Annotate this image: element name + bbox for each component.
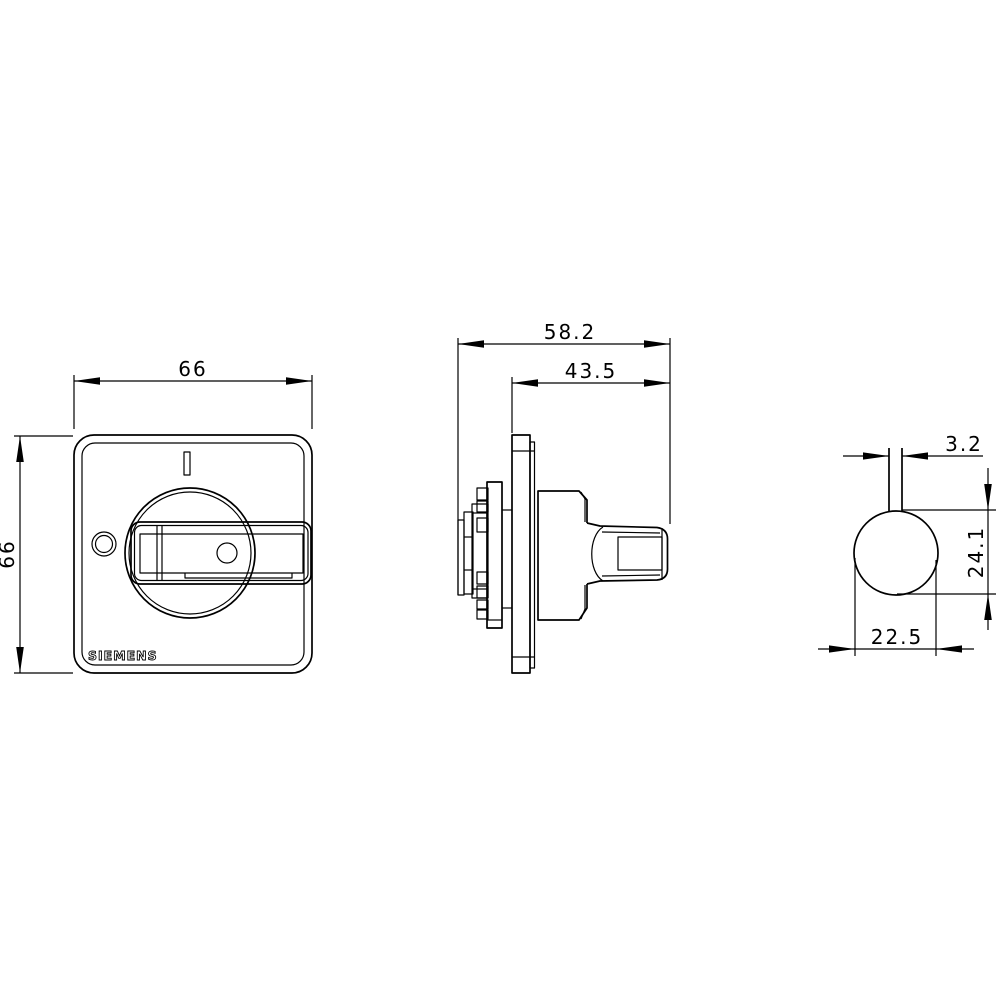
grip-inner-line [602,575,660,576]
siemens-logo: SIEMENS [88,648,158,663]
front-view: 66 66 SIEM [0,357,312,673]
switch-body [458,482,512,628]
handle-face-step [185,573,292,578]
position-marker-off-inner [96,536,113,553]
arrowhead-right [936,645,962,652]
arrowhead-right [286,377,312,385]
side-front-depth-label: 43.5 [565,359,618,383]
handle-face [140,534,303,573]
grip-inner-rect [618,537,662,570]
arrowhead-left [512,379,538,387]
knob-circle-outer [125,488,255,618]
knob-base-outline [538,491,587,620]
end-width-dimension: 22.5 [818,558,974,656]
knob-circle-inner [129,492,251,614]
arrowhead-left [829,645,855,652]
knob-dome-arc [592,527,603,581]
arrowhead-left [74,377,100,385]
arrowhead-right [644,340,670,348]
grip-inner-line [602,532,660,533]
arrowhead-right [644,379,670,387]
end-handle-width-dimension: 3.2 [843,432,983,460]
flange-outline [512,435,530,673]
front-height-label: 66 [0,539,19,568]
arrowhead-left [863,452,889,459]
front-width-label: 66 [178,357,207,381]
handle-outline [131,522,311,584]
front-height-dimension: 66 [0,436,73,673]
end-width-label: 22.5 [871,625,924,649]
arrowhead-bottom [984,594,992,620]
knob-side-profile [538,491,668,620]
knob-base-chamfer [581,585,585,619]
end-height-dimension: 24.1 [897,468,996,630]
faceplate-inner-outline [82,443,304,665]
arrowhead-top [16,436,24,462]
end-handle-width-label: 3.2 [945,432,983,456]
handle-screw [217,543,237,563]
handle-bar [131,522,311,584]
side-total-depth-label: 58.2 [544,320,597,344]
knob-end-circle [854,511,938,595]
arrowhead-top [984,484,992,510]
front-width-dimension: 66 [74,357,312,429]
side-view: 58.2 43.5 [458,320,670,673]
position-marker-on-icon [184,452,190,475]
drawing-canvas: 66 66 SIEM [0,0,1000,1000]
dimension-drawing: 66 66 SIEM [0,0,1000,1000]
side-front-depth-dimension: 43.5 [512,359,670,433]
mounting-plate [487,482,502,628]
arrowhead-left [458,340,484,348]
flange-plate [512,435,535,673]
body-back-block [458,520,464,595]
arrowhead-right [902,452,928,459]
end-height-label: 24.1 [964,526,988,579]
knob-end-view: 3.2 24.1 22.5 [818,432,996,656]
arrowhead-bottom [16,647,24,673]
